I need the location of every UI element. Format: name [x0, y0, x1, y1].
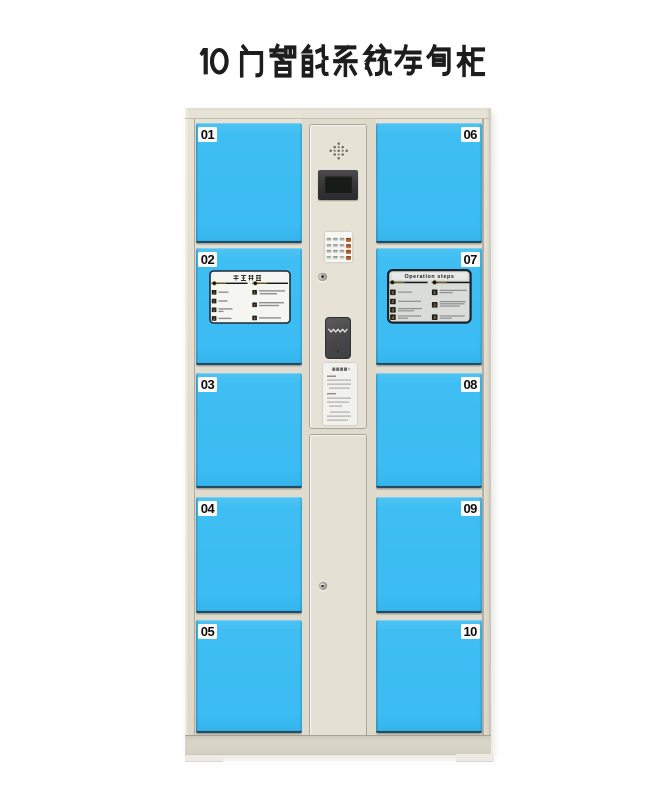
svg-text:3: 3 — [213, 308, 215, 312]
svg-text:1: 1 — [433, 290, 436, 295]
svg-text:2: 2 — [254, 303, 256, 307]
svg-text:2: 2 — [392, 299, 395, 304]
svg-text:3: 3 — [433, 315, 436, 320]
svg-text:2: 2 — [213, 299, 215, 303]
svg-text:4: 4 — [392, 315, 395, 320]
svg-text:2: 2 — [433, 303, 436, 308]
svg-text:1: 1 — [213, 290, 215, 294]
svg-text:3: 3 — [392, 308, 395, 313]
svg-text:1: 1 — [392, 290, 395, 295]
svg-text:1: 1 — [254, 290, 256, 294]
svg-text:3: 3 — [254, 316, 256, 320]
svg-text:Operation steps: Operation steps — [404, 274, 454, 280]
